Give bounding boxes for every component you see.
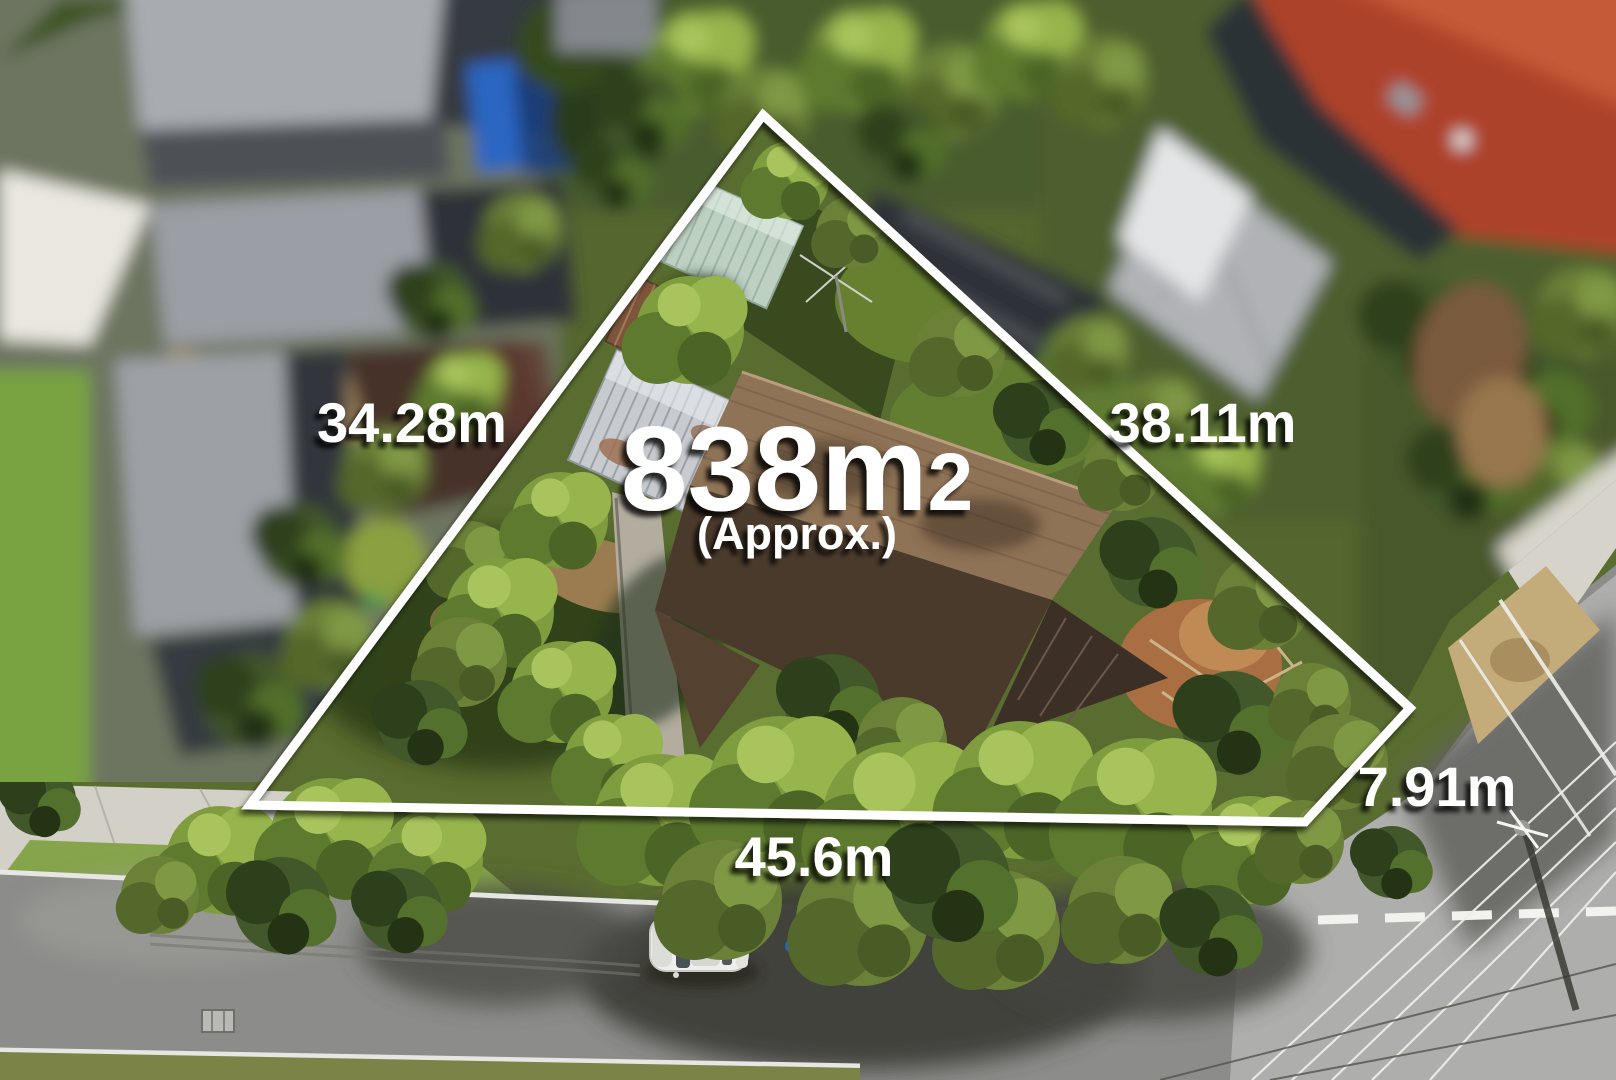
aerial-lot-photo: 838m2 (Approx.) 34.28m 38.11m 45.6m 7.91… <box>0 0 1616 1080</box>
drain-grate <box>202 1010 234 1032</box>
side-right-label: 38.11m <box>1110 391 1297 454</box>
aerial-photo-canvas: 838m2 (Approx.) 34.28m 38.11m 45.6m 7.91… <box>0 0 1616 1080</box>
side-left-label: 34.28m <box>317 391 507 454</box>
side-bottom-label: 45.6m <box>735 825 894 888</box>
area-superscript: 2 <box>928 437 974 528</box>
area-qualifier-label: (Approx.) <box>697 508 897 559</box>
side-corner-label: 7.91m <box>1358 755 1517 818</box>
